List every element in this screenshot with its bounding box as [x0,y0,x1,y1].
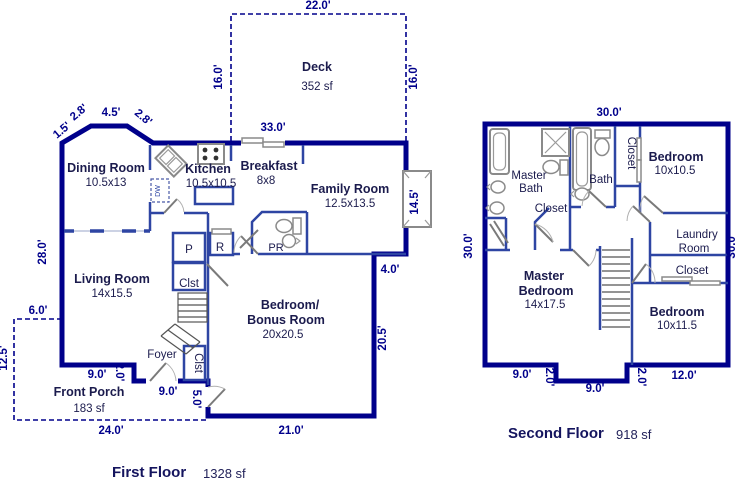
master-bath-tub-icon [490,129,509,174]
dim-deck-right: 16.0' [408,64,420,89]
living-room-label: Living Room [74,272,150,286]
dining-room-size: 10.5x13 [86,177,127,189]
bonus-room-size: 20x20.5 [263,329,304,341]
laundry-label-2: Room [679,243,710,255]
second-floor-title: Second Floor [508,425,604,442]
laundry-closet-label: Closet [676,265,709,277]
powder-room-toilet-icon [276,218,301,234]
dim-porch-top: 6.0' [29,305,48,317]
powder-room-label: PR [268,242,283,254]
dim-sf-bottom-9b: 9.0' [586,383,605,395]
bath-toilet-icon [595,130,610,156]
shower-icon [542,129,569,156]
dim-bottom-21: 21.0' [278,425,303,437]
dim-bay-2: 2.8' [68,102,90,123]
pantry-label: P [185,244,193,256]
dim-side-5: 5.0' [190,390,202,409]
dim-sf-notch-2b: 2.0' [635,368,647,387]
foyer-label: Foyer [147,349,177,361]
breakfast-label: Breakfast [241,159,299,173]
fridge-label: R [216,242,224,254]
deck-area: 352 sf [301,81,333,93]
front-porch-label: Front Porch [54,385,125,399]
breakfast-size: 8x8 [257,175,276,187]
second-floor-area: 918 sf [616,427,652,442]
foyer-closet-label: Clst [192,353,204,374]
second-floor-plan: 30.0' 30.0' 30.0' 9.0' 2.0' 9.0' 2.0' 12… [463,107,738,442]
dim-sf-bottom-9a: 9.0' [513,369,532,381]
hall-closet-label: Clst [179,278,200,290]
bath-label: Bath [589,174,613,186]
dim-fireplace-145: 14.5' [409,189,421,214]
living-room-size: 14x15.5 [92,288,133,300]
first-floor-area: 1328 sf [203,466,246,481]
dim-bay-3: 4.5' [102,107,121,119]
bonus-room-label-1: Bedroom/ [261,298,320,312]
dim-sf-left: 30.0' [463,233,475,258]
dim-sf-right: 30.0' [726,233,738,258]
dim-sf-notch-2a: 2.0' [543,368,555,387]
deck-label: Deck [302,60,332,74]
master-bath-label-1: Master [511,170,546,182]
dim-sf-bottom-12: 12.0' [671,370,696,382]
deck-slider-door [241,137,285,148]
dim-front-2: 2.0' [113,363,125,382]
master-bedroom-label-1: Master [524,269,564,283]
master-closet-label: Closet [535,203,568,215]
dim-top-33: 33.0' [260,122,285,134]
stove-icon [198,144,224,164]
floor-plan-canvas: 22.0' 16.0' 16.0' 33.0' 1.5' 2.8' 4.5' 2… [0,0,741,482]
dim-step-4: 4.0' [381,264,400,276]
dim-porch-left: 12.5' [0,345,10,370]
master-bath-label-2: Bath [519,183,543,195]
bedroom1-label: Bedroom [649,150,704,164]
dim-sf-top: 30.0' [596,107,621,119]
dim-front-9b: 9.0' [159,386,178,398]
bonus-room-label-2: Bonus Room [247,313,325,327]
kitchen-size: 10.5x10.5 [186,178,237,190]
kitchen-label: Kitchen [185,162,231,176]
dim-deck-top: 22.0' [305,0,330,12]
dim-deck-left: 16.0' [213,64,225,89]
first-floor-title: First Floor [112,464,186,481]
bedroom2-size: 10x11.5 [657,320,697,332]
family-room-size: 12.5x13.5 [325,198,376,210]
dim-front-9a: 9.0' [88,369,107,381]
bedroom2-label: Bedroom [650,305,705,319]
master-bedroom-size: 14x17.5 [525,299,566,311]
dishwasher-label: DW [155,185,162,197]
laundry-label-1: Laundry [676,229,718,241]
front-porch-area: 183 sf [73,403,105,415]
master-bath-toilet-icon [543,160,568,175]
dim-porch-bottom: 24.0' [98,425,123,437]
dim-right-205: 20.5' [377,325,389,350]
bedroom1-size: 10x10.5 [655,165,696,177]
dim-left-28: 28.0' [37,239,49,264]
deck-outline [231,14,406,141]
bath-closet-label: Closet [625,137,637,170]
dim-bay-4: 2.8' [132,107,154,128]
master-bedroom-label-2: Bedroom [519,284,574,298]
floor-plan-page: 22.0' 16.0' 16.0' 33.0' 1.5' 2.8' 4.5' 2… [0,0,741,482]
family-room-label: Family Room [311,182,390,196]
first-floor-plan: 22.0' 16.0' 16.0' 33.0' 1.5' 2.8' 4.5' 2… [0,0,431,481]
dining-room-label: Dining Room [67,161,145,175]
